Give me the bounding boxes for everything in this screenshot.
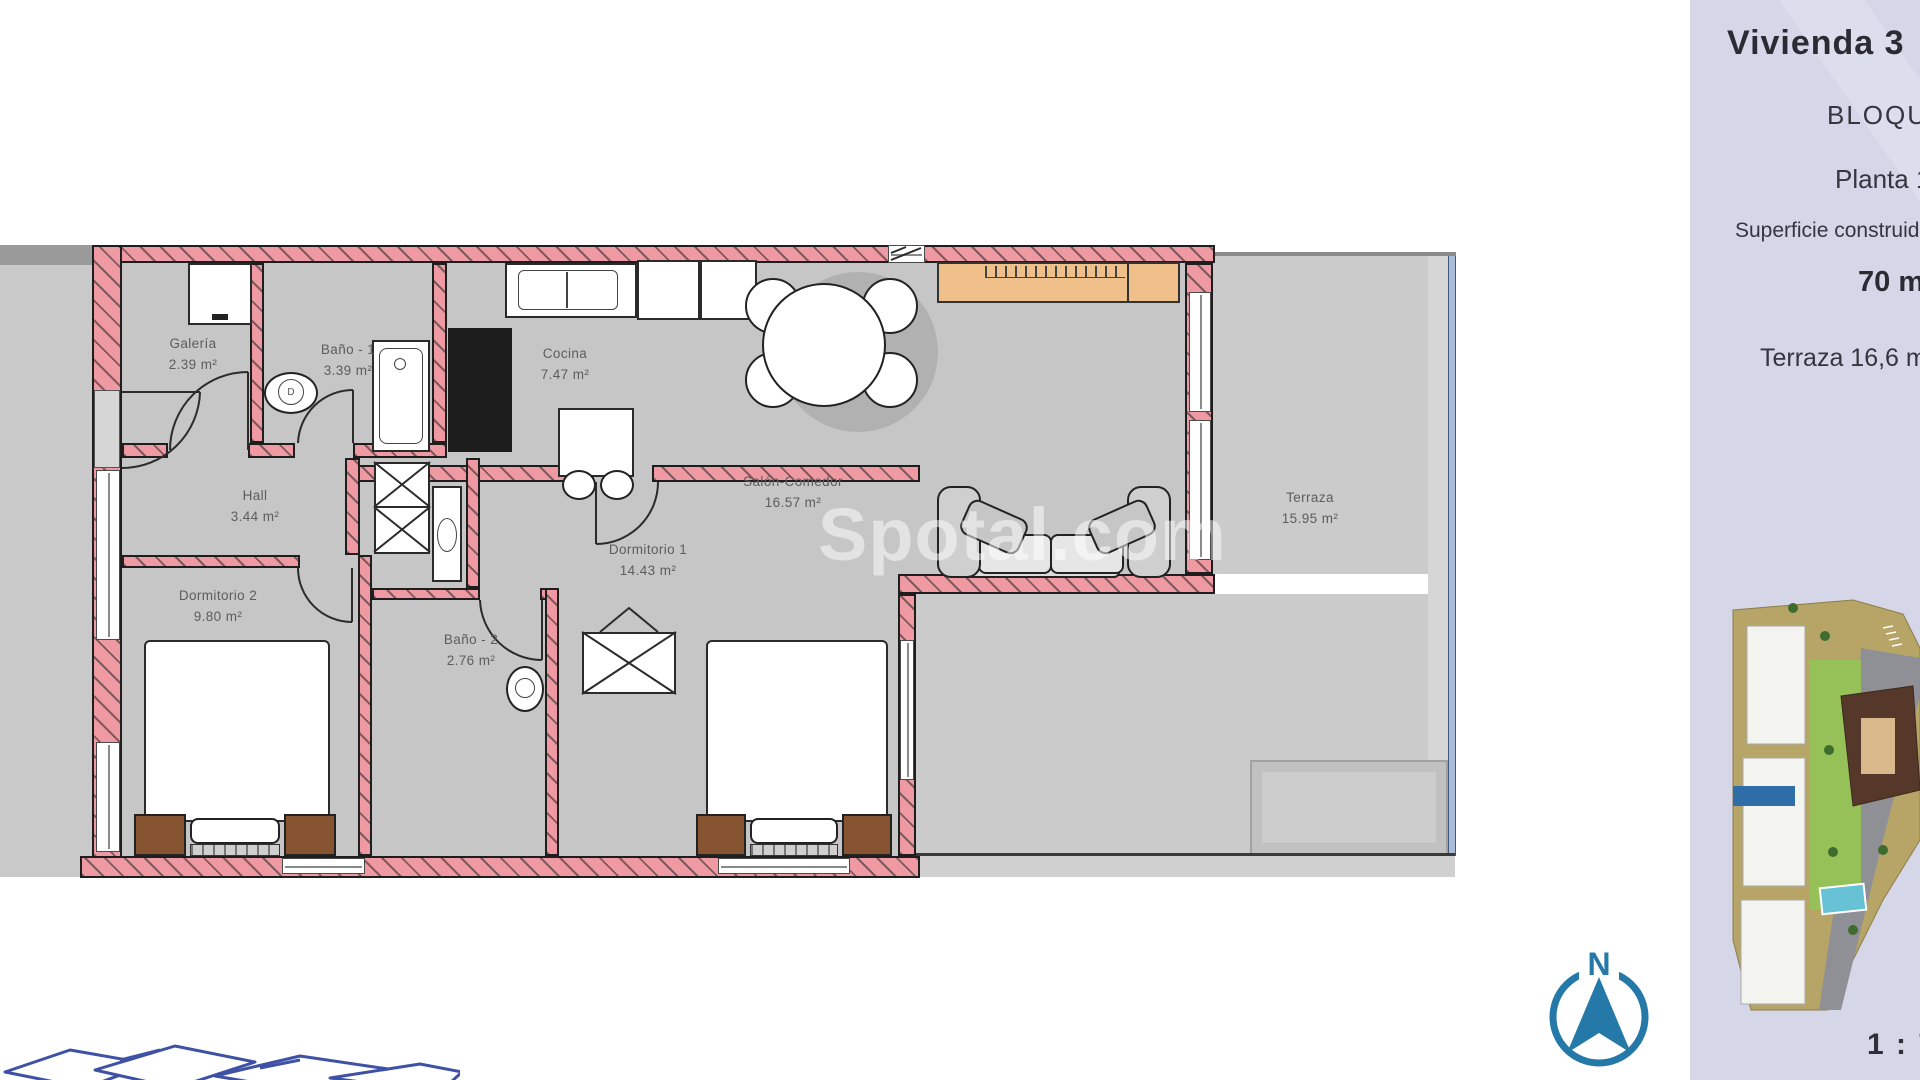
room-area: 7.47 m² xyxy=(541,365,590,386)
terrace-glass-balustrade xyxy=(1448,256,1456,856)
kitchen-sink-divider xyxy=(566,272,568,308)
room-label-dorm2: Dormitorio 2 9.80 m² xyxy=(179,586,257,628)
window-left-dorm2 xyxy=(96,742,120,852)
room-label-galeria: Galería 2.39 m² xyxy=(169,334,218,376)
room-area: 9.80 m² xyxy=(179,607,257,628)
room-name: Salón-Comedor xyxy=(743,472,843,493)
room-area: 14.43 m² xyxy=(609,561,687,582)
wardrobe xyxy=(374,462,430,554)
window-bottom-dorm1 xyxy=(718,858,850,874)
nightstand-dorm2-left xyxy=(134,814,186,856)
kitchen-island xyxy=(558,408,634,477)
room-name: Galería xyxy=(169,334,218,355)
room-name: Dormitorio 1 xyxy=(609,540,687,561)
corner-logo xyxy=(0,1020,460,1080)
kitchen-stool-2 xyxy=(600,470,634,500)
wall-galeria-bottom-1 xyxy=(122,443,168,458)
room-label-cocina: Cocina 7.47 m² xyxy=(541,344,590,386)
room-area: 3.39 m² xyxy=(321,361,375,382)
compass-needle xyxy=(1567,977,1631,1053)
room-name: Terraza xyxy=(1282,488,1338,509)
room-name: Cocina xyxy=(541,344,590,365)
block-label: BLOQUE xyxy=(1827,100,1920,131)
entrance-door-gap xyxy=(94,390,120,468)
nightstand-dorm1-right xyxy=(842,814,892,856)
compass-rose: N xyxy=(1543,941,1655,1077)
storage-chest xyxy=(582,632,676,694)
wall-bath2-top-a xyxy=(372,588,480,600)
compass-north-label: N xyxy=(1587,946,1610,982)
window-left-hall xyxy=(96,470,120,640)
toilet-bath2-bowl xyxy=(515,678,535,698)
bed-dorm1 xyxy=(706,640,888,822)
terrace-value: Terraza 16,6 m² xyxy=(1760,344,1920,373)
wall-corridor-dorm1 xyxy=(466,458,480,588)
room-name: Baño - 2 xyxy=(444,630,498,651)
kitchen-sink-basin xyxy=(518,270,618,310)
kitchen-stool-1 xyxy=(562,470,596,500)
room-name: Baño - 1 xyxy=(321,340,375,361)
bathtub-drain xyxy=(394,358,406,370)
room-area: 3.44 m² xyxy=(231,507,280,528)
wall-galeria-bottom-2 xyxy=(248,443,295,458)
toilet-bath1-bowl: D xyxy=(278,379,304,405)
wall-hall-dorm2 xyxy=(122,555,300,568)
nightstand-dorm2-right xyxy=(284,814,336,856)
info-panel: Vivienda 3 BLOQUE Planta 1 Superficie co… xyxy=(1690,0,1920,1080)
terrace-planter-inner xyxy=(1262,772,1436,843)
surface-value: 70 m² xyxy=(1858,266,1920,299)
room-label-dorm1: Dormitorio 1 14.43 m² xyxy=(609,540,687,582)
wall-hall-wardrobe xyxy=(345,458,360,555)
site-building-2 xyxy=(1743,758,1805,886)
bed-slats-dorm2 xyxy=(190,844,280,856)
room-name: Hall xyxy=(231,486,280,507)
pillow-dorm1 xyxy=(750,818,838,844)
floor-plan: D xyxy=(0,0,1690,1080)
room-label-hall: Hall 3.44 m² xyxy=(231,486,280,528)
room-label-terraza: Terraza 15.95 m² xyxy=(1282,488,1338,530)
unit-title: Vivienda 3 xyxy=(1727,24,1905,63)
kitchen-cabinet-1 xyxy=(637,260,700,320)
wall-dorm2-bath2 xyxy=(358,555,372,856)
window-dorm1-terrace xyxy=(900,640,914,780)
service-shaft xyxy=(448,328,512,452)
floor-label: Planta 1 xyxy=(1835,164,1920,195)
window-top-salon xyxy=(888,245,925,263)
wall-bath2-right xyxy=(545,588,559,856)
window-salon-terrace-1 xyxy=(1189,292,1211,412)
window-bottom-center xyxy=(282,858,365,874)
scale-text: 1 : 75 xyxy=(1867,1028,1920,1062)
bed-slats-dorm1 xyxy=(750,844,838,856)
watermark-text: Spotal.com xyxy=(818,492,1227,577)
site-courtyard xyxy=(1861,718,1895,774)
corridor-top-shadow xyxy=(0,245,92,265)
room-area: 2.39 m² xyxy=(169,355,218,376)
site-building-3 xyxy=(1741,900,1805,1004)
site-pool xyxy=(1820,884,1866,914)
wall-bath1-cocina xyxy=(432,263,447,443)
building-corridor-strip xyxy=(0,245,92,877)
floorplan-page: { "panel": { "title": "Vivienda 3", "blo… xyxy=(0,0,1920,1080)
room-area: 15.95 m² xyxy=(1282,509,1338,530)
bed-dorm2 xyxy=(144,640,330,822)
sideboard-teeth xyxy=(985,266,1125,278)
dining-table xyxy=(762,283,886,407)
room-label-bath2: Baño - 2 2.76 m² xyxy=(444,630,498,672)
vanity-basin xyxy=(437,518,457,552)
terrace-bottom-band xyxy=(916,856,1455,877)
room-area: 2.76 m² xyxy=(444,651,498,672)
site-highlight-unit xyxy=(1733,786,1795,806)
room-name: Dormitorio 2 xyxy=(179,586,257,607)
pillow-dorm2 xyxy=(190,818,280,844)
wall-galeria-bath1 xyxy=(250,263,264,443)
sideboard-divider xyxy=(1127,263,1129,302)
nightstand-dorm1-left xyxy=(696,814,746,856)
surface-label: Superficie construida xyxy=(1735,219,1920,243)
room-label-bath1: Baño - 1 3.39 m² xyxy=(321,340,375,382)
site-building-1 xyxy=(1747,626,1805,744)
washer-knob xyxy=(212,314,228,320)
site-plan-inset xyxy=(1733,600,1920,1010)
